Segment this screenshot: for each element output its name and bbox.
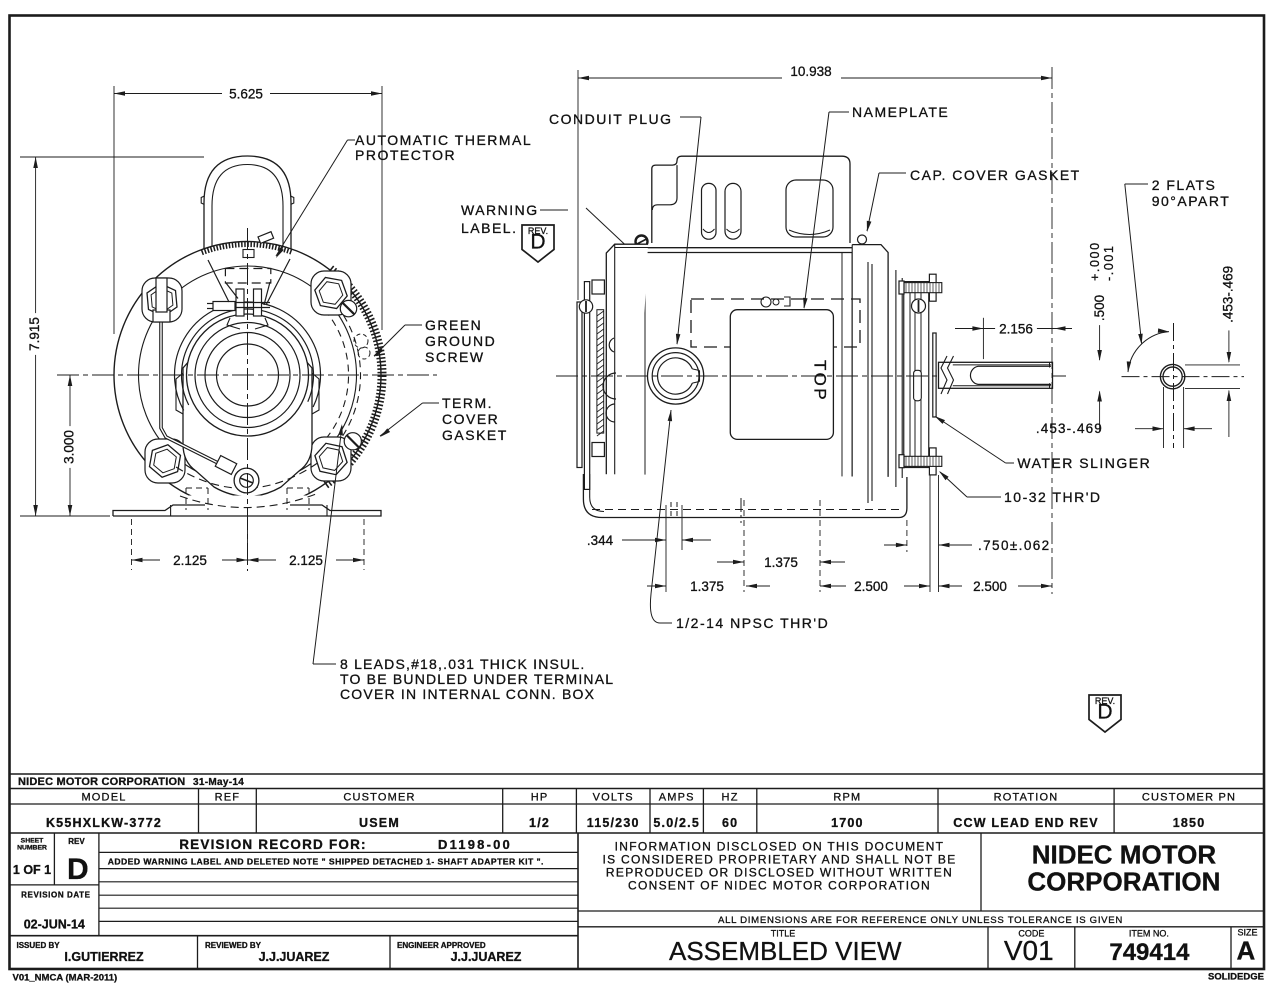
svg-text:ROTATION: ROTATION	[994, 792, 1059, 804]
svg-text:NAMEPLATE: NAMEPLATE	[852, 104, 949, 120]
svg-text:749414: 749414	[1109, 939, 1190, 966]
svg-text:1/2-14 NPSC THR'D: 1/2-14 NPSC THR'D	[676, 615, 829, 631]
svg-text:SOLIDEDGE: SOLIDEDGE	[1208, 972, 1264, 983]
svg-text:2.156: 2.156	[999, 321, 1033, 336]
svg-text:AMPS: AMPS	[659, 792, 695, 804]
svg-text:J.J.JUAREZ: J.J.JUAREZ	[451, 950, 522, 964]
svg-text:ADDED WARNING LABEL AND DELETE: ADDED WARNING LABEL AND DELETED NOTE " S…	[108, 857, 544, 867]
svg-text:ASSEMBLED VIEW: ASSEMBLED VIEW	[669, 936, 902, 966]
svg-text:VOLTS: VOLTS	[593, 792, 634, 804]
svg-text:TO BE BUNDLED UNDER TERMINAL: TO BE BUNDLED UNDER TERMINAL	[340, 671, 614, 687]
svg-text:CONSENT OF NIDEC MOTOR CORPORA: CONSENT OF NIDEC MOTOR CORPORATION	[628, 879, 931, 893]
svg-text:REVISION DATE: REVISION DATE	[21, 891, 91, 900]
svg-text:.453-.469: .453-.469	[1220, 266, 1235, 323]
svg-text:D: D	[530, 230, 545, 253]
svg-text:COVER IN INTERNAL CONN. BOX: COVER IN INTERNAL CONN. BOX	[340, 686, 595, 702]
svg-text:1.375: 1.375	[690, 579, 724, 594]
svg-text:D1198-00: D1198-00	[438, 837, 512, 852]
svg-text:.500: .500	[1092, 295, 1107, 321]
svg-text:ISSUED BY: ISSUED BY	[17, 941, 61, 950]
svg-text:WATER SLINGER: WATER SLINGER	[1017, 455, 1151, 471]
svg-text:.750±.062: .750±.062	[978, 538, 1051, 553]
svg-text:PROTECTOR: PROTECTOR	[355, 147, 456, 163]
svg-text:COVER: COVER	[442, 411, 499, 427]
svg-text:60: 60	[722, 816, 738, 830]
svg-text:A: A	[1237, 935, 1256, 965]
svg-text:RPM: RPM	[833, 792, 861, 804]
svg-text:10.938: 10.938	[790, 64, 831, 79]
svg-text:+.000: +.000	[1088, 241, 1102, 281]
svg-text:5.0/2.5: 5.0/2.5	[653, 816, 700, 830]
svg-text:10-32 THR'D: 10-32 THR'D	[1004, 489, 1102, 505]
svg-text:V01: V01	[1004, 935, 1054, 966]
svg-text:J.J.JUAREZ: J.J.JUAREZ	[259, 950, 330, 964]
svg-text:TOP: TOP	[811, 360, 830, 402]
svg-text:CAP. COVER GASKET: CAP. COVER GASKET	[910, 167, 1081, 183]
svg-text:CONDUIT PLUG: CONDUIT PLUG	[549, 111, 673, 127]
svg-text:NIDEC MOTOR CORPORATION: NIDEC MOTOR CORPORATION	[18, 776, 185, 788]
svg-text:K55HXLKW-3772: K55HXLKW-3772	[46, 816, 162, 830]
svg-text:LABEL.: LABEL.	[461, 220, 517, 236]
svg-text:WARNING: WARNING	[461, 202, 539, 218]
svg-text:HZ: HZ	[722, 792, 739, 804]
svg-text:ENGINEER APPROVED: ENGINEER APPROVED	[397, 941, 486, 950]
svg-text:REVIEWED BY: REVIEWED BY	[205, 941, 262, 950]
svg-text:ALL DIMENSIONS ARE FOR REFEREN: ALL DIMENSIONS ARE FOR REFERENCE ONLY UN…	[718, 915, 1123, 926]
svg-text:HP: HP	[531, 792, 549, 804]
svg-text:1 OF 1: 1 OF 1	[13, 863, 51, 877]
svg-text:D: D	[1097, 700, 1112, 723]
svg-text:.453-.469: .453-.469	[1036, 421, 1103, 436]
svg-text:CORPORATION: CORPORATION	[1027, 867, 1220, 897]
svg-text:CCW LEAD END REV: CCW LEAD END REV	[953, 816, 1099, 830]
svg-text:2.125: 2.125	[173, 553, 207, 568]
svg-text:NUMBER: NUMBER	[17, 845, 47, 852]
svg-text:1850: 1850	[1173, 816, 1206, 830]
svg-text:115/230: 115/230	[587, 816, 640, 830]
svg-text:USEM: USEM	[359, 816, 400, 830]
svg-text:GREEN: GREEN	[425, 317, 482, 333]
svg-text:V01_NMCA (MAR-2011): V01_NMCA (MAR-2011)	[13, 973, 118, 983]
svg-text:1.375: 1.375	[764, 555, 798, 570]
svg-text:ITEM NO.: ITEM NO.	[1129, 929, 1169, 939]
svg-text:8 LEADS,#18,.031 THICK INSUL.: 8 LEADS,#18,.031 THICK INSUL.	[340, 656, 585, 672]
svg-text:2.500: 2.500	[854, 579, 888, 594]
svg-text:GASKET: GASKET	[442, 427, 508, 443]
svg-text:.344: .344	[587, 533, 614, 548]
svg-text:90°APART: 90°APART	[1152, 193, 1231, 209]
svg-text:3.000: 3.000	[61, 430, 76, 464]
svg-text:INFORMATION DISCLOSED ON THIS: INFORMATION DISCLOSED ON THIS DOCUMENT	[615, 840, 945, 854]
svg-text:NIDEC MOTOR: NIDEC MOTOR	[1032, 840, 1217, 870]
svg-text:02-JUN-14: 02-JUN-14	[24, 918, 85, 932]
svg-text:MODEL: MODEL	[81, 792, 126, 804]
svg-text:2.125: 2.125	[289, 553, 323, 568]
svg-text:7.915: 7.915	[27, 317, 42, 351]
svg-text:REV: REV	[68, 837, 85, 846]
svg-text:D: D	[67, 853, 89, 886]
svg-text:REVISION RECORD FOR:: REVISION RECORD FOR:	[179, 837, 367, 852]
svg-text:TERM.: TERM.	[442, 395, 493, 411]
svg-text:-.001: -.001	[1102, 245, 1116, 282]
svg-text:2.500: 2.500	[973, 579, 1007, 594]
svg-text:1/2: 1/2	[529, 816, 550, 830]
svg-text:CUSTOMER: CUSTOMER	[343, 792, 415, 804]
svg-text:31-May-14: 31-May-14	[193, 777, 244, 788]
svg-text:SCREW: SCREW	[425, 349, 485, 365]
svg-text:5.625: 5.625	[229, 86, 263, 101]
svg-text:CUSTOMER PN: CUSTOMER PN	[1142, 792, 1236, 804]
svg-text:1700: 1700	[831, 816, 864, 830]
svg-text:REF: REF	[215, 792, 241, 804]
svg-text:2 FLATS: 2 FLATS	[1152, 177, 1217, 193]
svg-text:AUTOMATIC THERMAL: AUTOMATIC THERMAL	[355, 132, 532, 148]
svg-text:REPRODUCED OR DISCLOSED WITHOU: REPRODUCED OR DISCLOSED WITHOUT WRITTEN	[606, 866, 953, 880]
svg-text:IS CONSIDERED PROPRIETARY AND: IS CONSIDERED PROPRIETARY AND SHALL NOT …	[602, 853, 956, 867]
svg-text:I.GUTIERREZ: I.GUTIERREZ	[64, 950, 144, 964]
svg-text:SHEET: SHEET	[21, 838, 45, 845]
svg-text:GROUND: GROUND	[425, 333, 496, 349]
